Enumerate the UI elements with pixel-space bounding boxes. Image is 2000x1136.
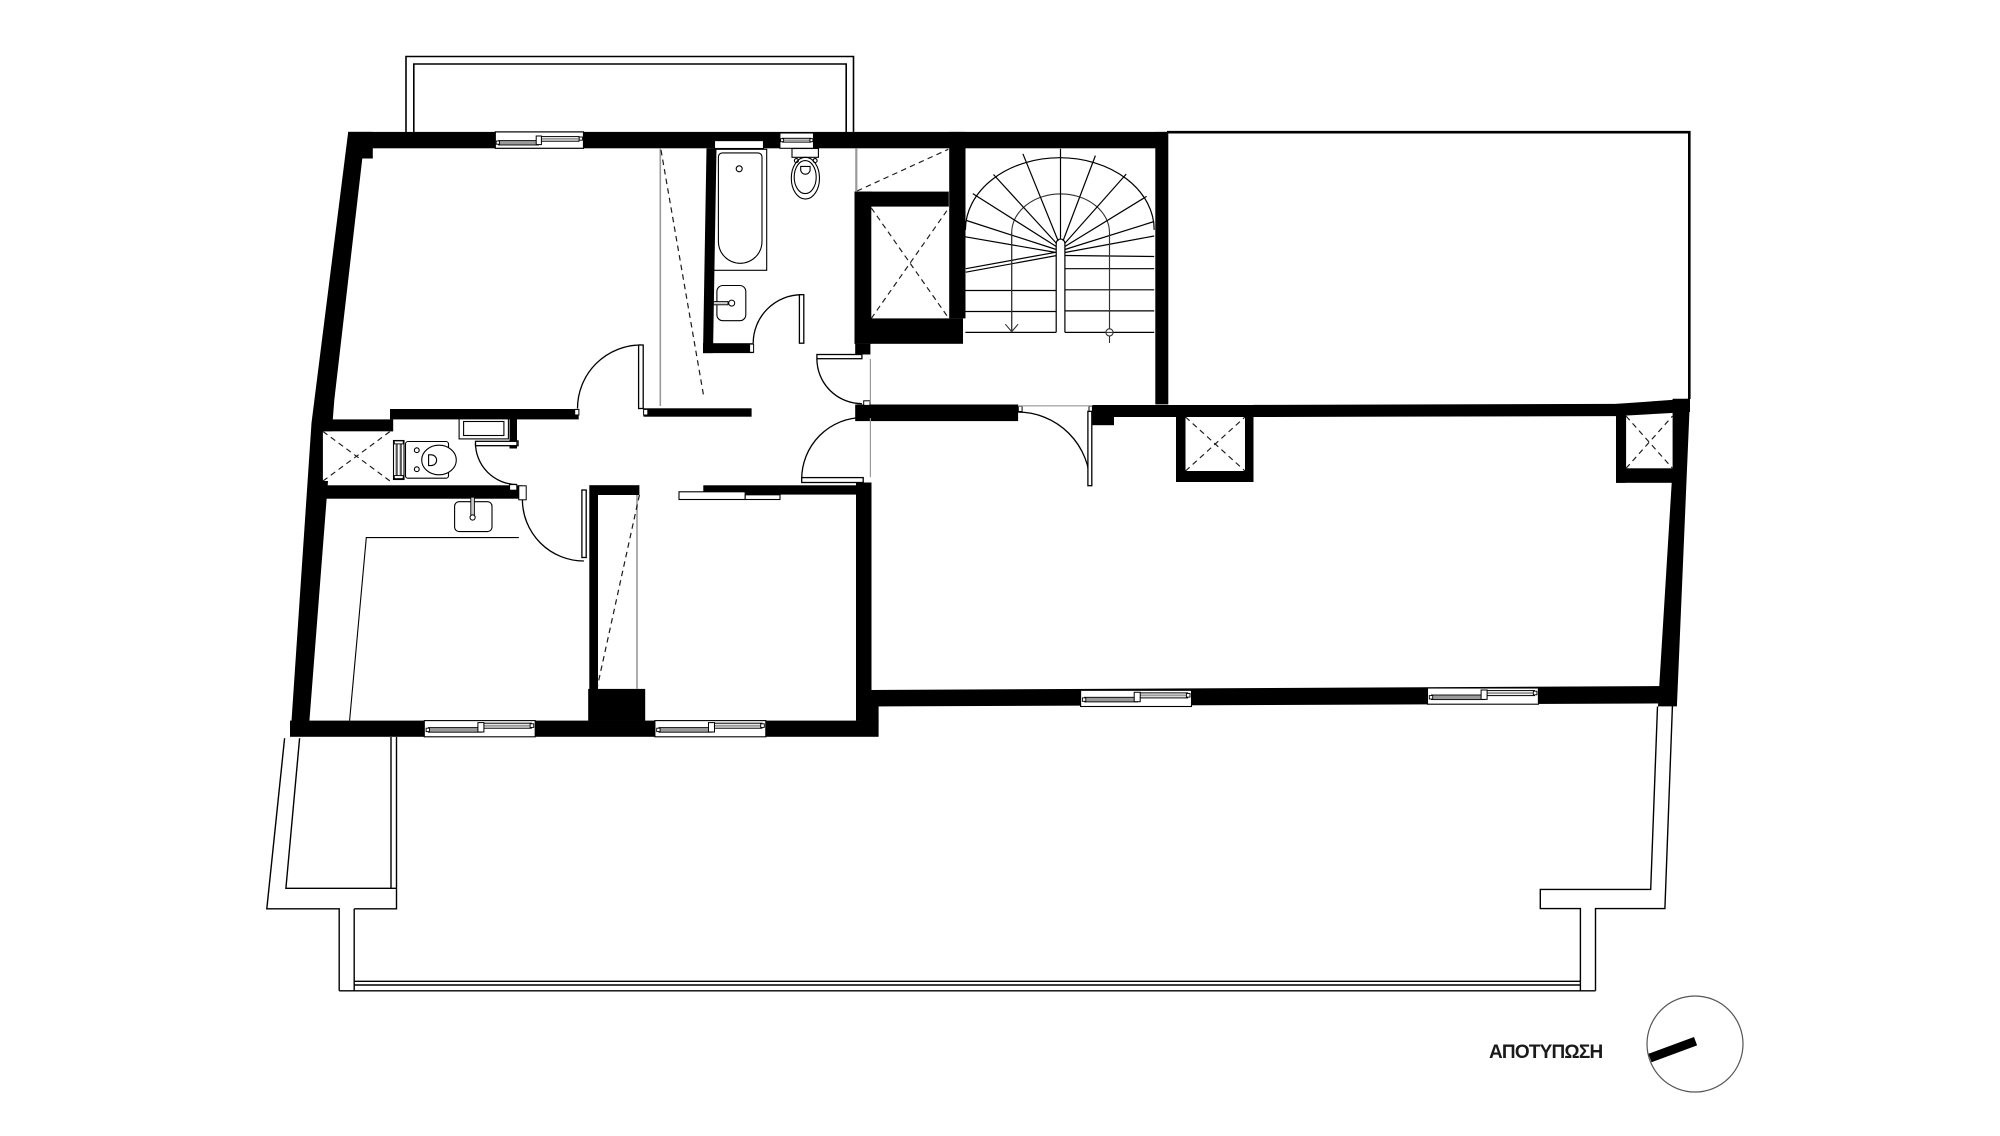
svg-text:ΑΠΟΤΥΠΩΣΗ: ΑΠΟΤΥΠΩΣΗ bbox=[1489, 1042, 1602, 1063]
